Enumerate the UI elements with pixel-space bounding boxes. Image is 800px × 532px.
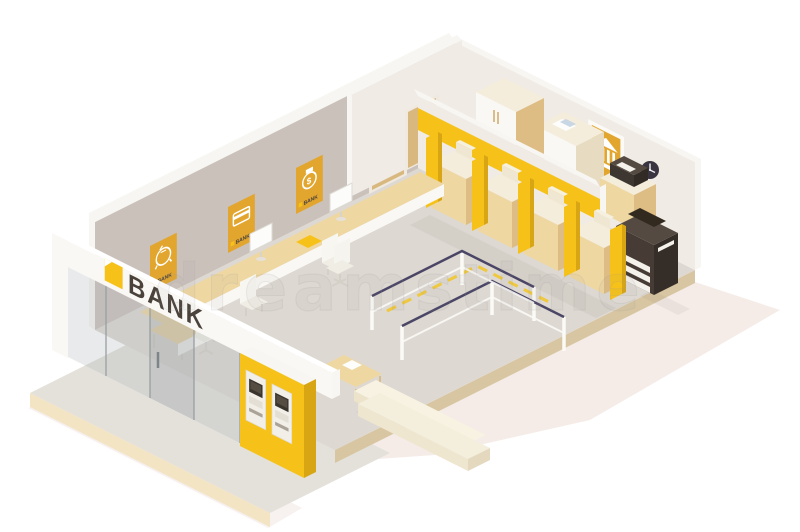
teller-divider xyxy=(518,178,530,254)
teller-divider-edge xyxy=(530,178,534,248)
beam-end-cap xyxy=(332,369,340,399)
back-partition-end xyxy=(347,90,352,196)
watermark-text: dreamstime xyxy=(154,252,645,326)
teller-divider-edge xyxy=(484,155,488,225)
right-wall-end xyxy=(695,159,701,270)
atm-machine xyxy=(272,384,292,444)
corner-pillar xyxy=(52,233,68,358)
atm-machine xyxy=(246,370,266,430)
atm-wall-side xyxy=(304,379,316,478)
bank-isometric-scene: BANK BANK $ BANK xyxy=(0,0,800,532)
teller-divider xyxy=(472,155,484,231)
illustration-canvas: BANK BANK $ BANK xyxy=(0,0,800,532)
